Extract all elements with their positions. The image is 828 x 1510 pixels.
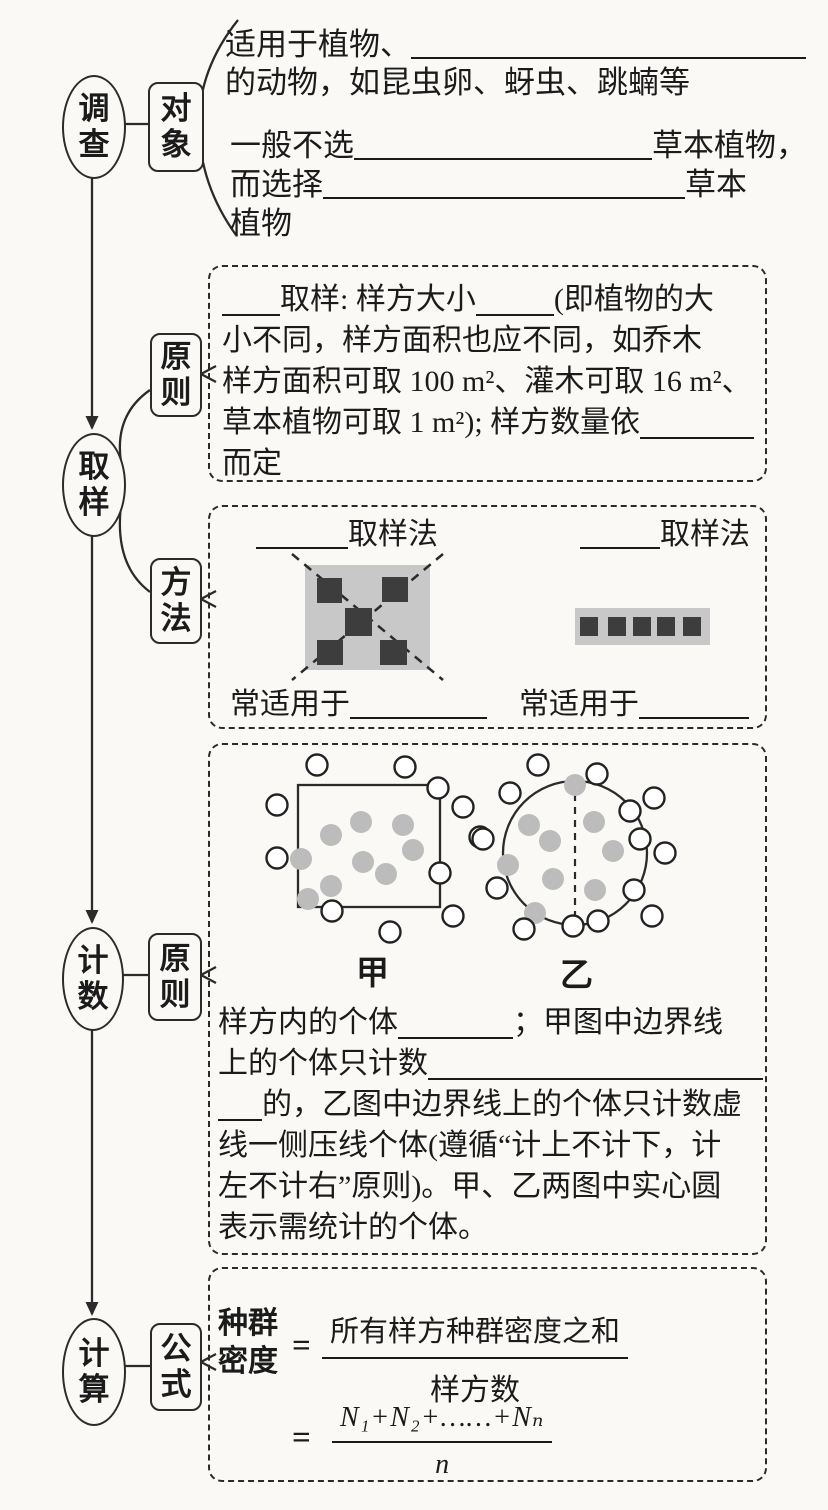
object-line-1: 适用于植物、 bbox=[225, 26, 806, 63]
arrow-down-icon bbox=[86, 416, 99, 430]
node-method-label: 方法 bbox=[159, 565, 193, 637]
node-formula-label: 公式 bbox=[159, 1331, 193, 1403]
yi-uncounted-individuals bbox=[473, 755, 711, 940]
fill-blank bbox=[354, 152, 652, 160]
principle-line-5: 而定 bbox=[222, 443, 754, 484]
fork-curve bbox=[120, 505, 150, 592]
principle-line-1: 取样: 样方大小 (即植物的大 bbox=[222, 279, 754, 320]
object-line-5: 植物 bbox=[230, 205, 292, 242]
jia-figure-label: 甲 bbox=[356, 946, 389, 994]
fill-blank bbox=[222, 308, 280, 316]
node-survey-label: 调查 bbox=[77, 91, 111, 163]
individual-dot bbox=[587, 764, 608, 785]
fill-blank bbox=[398, 1031, 513, 1039]
principle-line-2: 小不同，样方面积也应不同，如乔木 bbox=[222, 320, 754, 361]
individual-dot bbox=[395, 757, 416, 778]
individual-dot bbox=[644, 788, 665, 809]
principle-line-5-text: 而定 bbox=[222, 443, 282, 484]
fill-blank bbox=[411, 51, 806, 59]
node-method: 方法 bbox=[150, 558, 202, 644]
counting-line-3: 的，乙图中边界线上的个体只计数虚 bbox=[218, 1084, 763, 1125]
counted-individual-dot bbox=[518, 814, 540, 836]
object-line-3-text: 一般不选 bbox=[230, 127, 354, 164]
jia-counted-individuals bbox=[290, 811, 424, 910]
individual-dot bbox=[267, 848, 288, 869]
individual-dot bbox=[500, 783, 521, 804]
node-counting-label: 计数 bbox=[76, 943, 110, 1015]
counted-individual-dot bbox=[539, 830, 561, 852]
fill-blank bbox=[218, 1113, 262, 1121]
object-line-4: 而选择 草本 bbox=[230, 166, 747, 203]
individual-dot bbox=[642, 906, 663, 927]
counted-individual-dot bbox=[402, 839, 424, 861]
five-point-sampling-figure bbox=[286, 548, 450, 686]
quadrat-square bbox=[317, 578, 342, 603]
counted-individual-dot bbox=[392, 814, 414, 836]
counted-individual-dot bbox=[542, 868, 564, 890]
fraction-2-numerator: N₁+N₂+……+Nₙ bbox=[332, 1400, 552, 1441]
fill-blank bbox=[640, 431, 754, 439]
counting-line-2: 上的个体只计数 bbox=[218, 1043, 763, 1084]
counted-individual-dot bbox=[497, 854, 519, 876]
individual-dot bbox=[443, 906, 464, 927]
counting-line-1: 样方内的个体 ；甲图中边界线 bbox=[218, 1002, 763, 1043]
counting-line-4: 线一侧压线个体(遵循“计上不计下，计 bbox=[218, 1125, 763, 1166]
method-left-caption-text: 常适用于 bbox=[230, 686, 350, 723]
individual-dot bbox=[487, 878, 508, 899]
object-line-2-text: 的动物，如昆虫卵、蚜虫、跳蝻等 bbox=[225, 64, 690, 101]
fill-blank bbox=[323, 191, 685, 199]
quadrat-square bbox=[382, 577, 408, 602]
counting-line-6: 表示需统计的个体。 bbox=[218, 1207, 763, 1248]
method-left-caption: 常适用于 bbox=[230, 686, 487, 723]
fraction-2: N₁+N₂+……+Nₙ n bbox=[332, 1400, 552, 1481]
quadrat-square bbox=[317, 640, 343, 665]
principle-line-1-text: 取样: 样方大小 bbox=[280, 279, 476, 320]
method-right-caption-text: 常适用于 bbox=[519, 686, 639, 723]
principle-line-3: 样方面积可取 100 m²、灌木可取 16 m²、 bbox=[222, 361, 754, 402]
node-sampling-label: 取样 bbox=[77, 449, 111, 521]
principle-line-1-text2: (即植物的大 bbox=[554, 279, 714, 320]
counted-individual-dot bbox=[564, 774, 586, 796]
individual-dot bbox=[588, 911, 609, 932]
counting-line-2-text: 上的个体只计数 bbox=[218, 1043, 428, 1084]
individual-dot bbox=[620, 801, 641, 822]
counting-line-3-text: 的，乙图中边界线上的个体只计数虚 bbox=[262, 1084, 742, 1125]
quadrat-square bbox=[580, 617, 598, 636]
individual-dot bbox=[473, 829, 494, 850]
fork-curve bbox=[120, 390, 150, 462]
method-right-caption: 常适用于 bbox=[519, 686, 749, 723]
node-formula: 公式 bbox=[150, 1323, 202, 1411]
quadrat-square bbox=[380, 640, 407, 665]
counting-figure bbox=[240, 745, 710, 995]
fill-blank bbox=[580, 541, 660, 549]
counted-individual-dot bbox=[352, 851, 374, 873]
arrow-down-icon bbox=[86, 1302, 99, 1316]
counted-individual-dot bbox=[320, 824, 342, 846]
quadrat-square bbox=[683, 617, 701, 636]
individual-dot bbox=[428, 778, 449, 799]
counted-individual-dot bbox=[350, 811, 372, 833]
node-principle-2: 原则 bbox=[148, 933, 202, 1021]
object-line-1-text: 适用于植物、 bbox=[225, 26, 411, 63]
equals-sign: = bbox=[292, 1420, 311, 1457]
individual-dot bbox=[307, 755, 328, 776]
node-sampling: 取样 bbox=[62, 433, 126, 537]
principle-line-4-text: 草本植物可取 1 m²); 样方数量依 bbox=[222, 402, 640, 443]
individual-dot bbox=[624, 880, 645, 901]
method-right-title-text: 取样法 bbox=[660, 516, 750, 553]
node-object-label: 对象 bbox=[159, 91, 193, 163]
yi-figure-label: 乙 bbox=[560, 948, 593, 996]
fraction-1: 所有样方种群密度之和 样方数 bbox=[322, 1308, 628, 1409]
counted-individual-dot bbox=[602, 840, 624, 862]
principle-line-3-text: 样方面积可取 100 m²、灌木可取 16 m²、 bbox=[222, 361, 752, 402]
object-line-4-text2: 草本 bbox=[685, 166, 747, 203]
individual-dot bbox=[528, 755, 549, 776]
fraction-1-numerator: 所有样方种群密度之和 bbox=[322, 1308, 628, 1357]
object-line-5-text: 植物 bbox=[230, 205, 292, 242]
principle-line-2-text: 小不同，样方面积也应不同，如乔木 bbox=[222, 320, 702, 361]
node-principle-1-label: 原则 bbox=[159, 339, 193, 411]
quadrat-square bbox=[345, 608, 372, 636]
object-line-3: 一般不选 草本植物， bbox=[230, 127, 807, 164]
density-label-line-2: 密度 bbox=[218, 1343, 278, 1381]
fraction-2-denominator: n bbox=[427, 1443, 457, 1481]
density-label: 种群 密度 bbox=[218, 1305, 278, 1381]
counted-individual-dot bbox=[290, 848, 312, 870]
fill-blank bbox=[350, 711, 487, 719]
object-line-4-text: 而选择 bbox=[230, 166, 323, 203]
node-counting: 计数 bbox=[62, 927, 124, 1031]
node-object: 对象 bbox=[148, 82, 204, 172]
quadrat-square bbox=[608, 617, 626, 636]
density-label-line-1: 种群 bbox=[218, 1305, 278, 1343]
individual-dot bbox=[453, 797, 474, 818]
counting-line-1-text: 样方内的个体 bbox=[218, 1002, 398, 1043]
counted-individual-dot bbox=[584, 879, 606, 901]
equals-sign: = bbox=[292, 1328, 311, 1365]
object-line-3-text2: 草本植物， bbox=[652, 127, 807, 164]
counted-individual-dot bbox=[583, 811, 605, 833]
counted-individual-dot bbox=[375, 863, 397, 885]
fill-blank bbox=[428, 1072, 763, 1080]
node-principle-1: 原则 bbox=[150, 333, 202, 417]
object-line-2: 的动物，如昆虫卵、蚜虫、跳蝻等 bbox=[225, 64, 690, 101]
node-calculation-label: 计算 bbox=[77, 1336, 111, 1408]
method-right-title: 取样法 bbox=[580, 516, 750, 553]
quadrat-square bbox=[633, 617, 651, 636]
counting-line-6-text: 表示需统计的个体。 bbox=[218, 1207, 488, 1248]
counting-line-4-text: 线一侧压线个体(遵循“计上不计下，计 bbox=[218, 1125, 721, 1166]
counted-individual-dot bbox=[320, 875, 342, 897]
individual-dot bbox=[514, 919, 535, 940]
counting-paragraph: 样方内的个体 ；甲图中边界线 上的个体只计数 的，乙图中边界线上的个体只计数虚 … bbox=[218, 1002, 763, 1248]
worksheet-page: 调查 对象 取样 原则 方法 计数 原则 计算 公式 适用于植物、 的动物，如昆… bbox=[0, 0, 828, 1510]
node-calculation: 计算 bbox=[62, 1318, 126, 1426]
individual-dot bbox=[430, 863, 451, 884]
principle-paragraph: 取样: 样方大小 (即植物的大 小不同，样方面积也应不同，如乔木 样方面积可取 … bbox=[222, 279, 754, 484]
node-principle-2-label: 原则 bbox=[158, 941, 192, 1013]
individual-dot bbox=[380, 922, 401, 943]
fill-blank bbox=[476, 308, 554, 316]
counting-line-5: 左不计右”原则)。甲、乙两图中实心圆 bbox=[218, 1166, 763, 1207]
individual-dot bbox=[322, 901, 343, 922]
individual-dot bbox=[267, 795, 288, 816]
counted-individual-dot bbox=[297, 888, 319, 910]
node-survey: 调查 bbox=[62, 75, 126, 179]
individual-dot bbox=[655, 843, 676, 864]
individual-dot bbox=[563, 916, 584, 937]
counting-line-1-text2: ；甲图中边界线 bbox=[513, 1002, 723, 1043]
equidistant-sampling-figure bbox=[575, 608, 710, 645]
counting-line-5-text: 左不计右”原则)。甲、乙两图中实心圆 bbox=[218, 1166, 721, 1207]
quadrat-square bbox=[657, 617, 675, 636]
principle-line-4: 草本植物可取 1 m²); 样方数量依 bbox=[222, 402, 754, 443]
arrow-down-icon bbox=[86, 910, 99, 924]
fill-blank bbox=[639, 711, 749, 719]
individual-dot bbox=[630, 829, 651, 850]
